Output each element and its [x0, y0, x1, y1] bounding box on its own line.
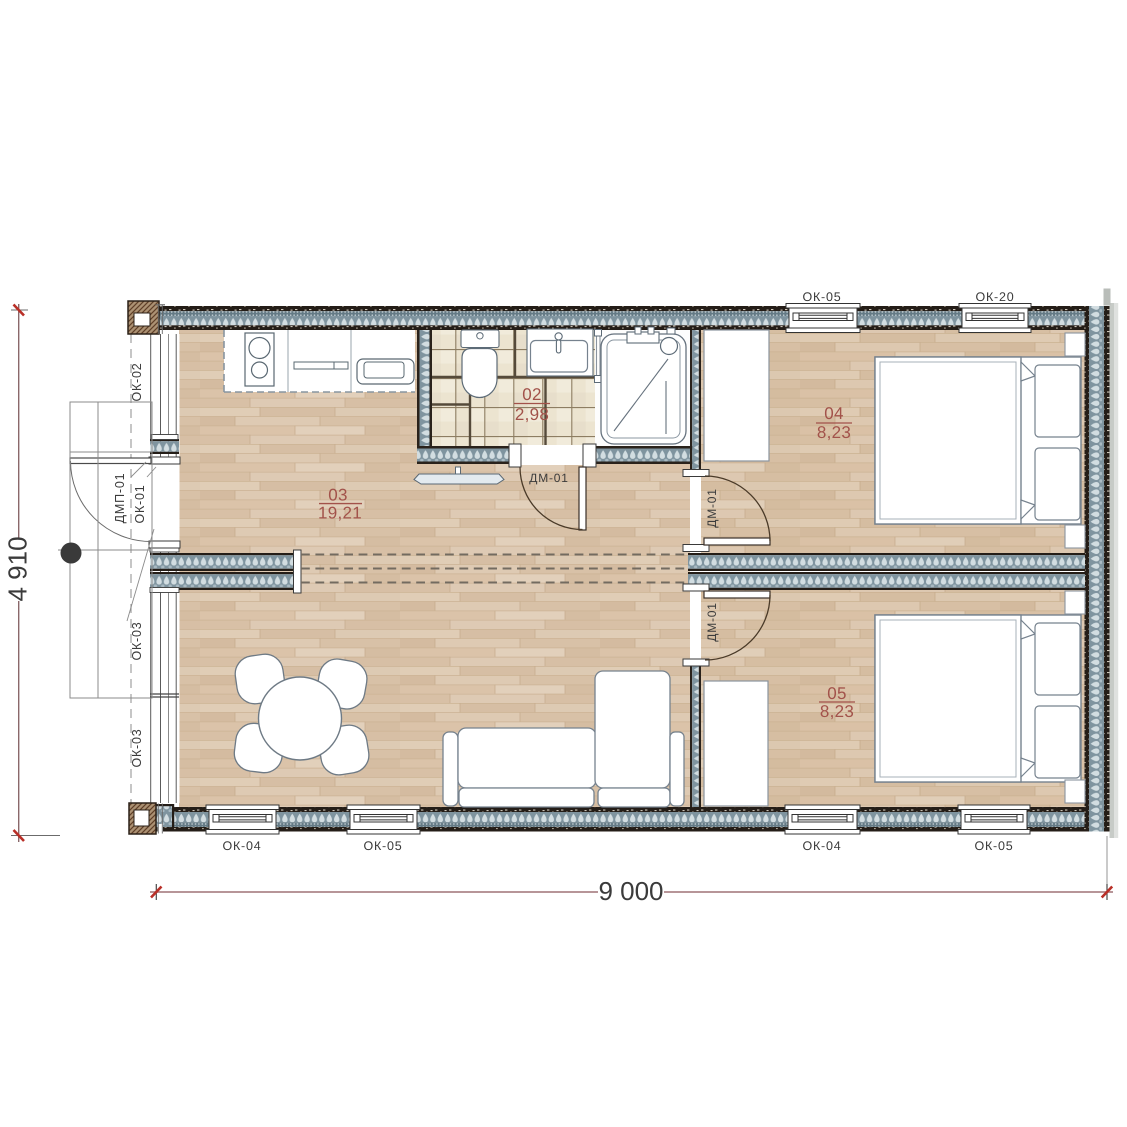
- svg-text:04: 04: [824, 404, 844, 423]
- svg-text:ОК-04: ОК-04: [802, 839, 841, 853]
- svg-text:03: 03: [328, 485, 348, 504]
- svg-text:ОК-02: ОК-02: [130, 362, 144, 401]
- svg-text:ОК-03: ОК-03: [130, 621, 144, 660]
- svg-text:2,98: 2,98: [515, 405, 549, 424]
- svg-text:ОК-05: ОК-05: [974, 839, 1013, 853]
- svg-text:ДМ-01: ДМ-01: [705, 602, 719, 641]
- svg-text:ДМ-01: ДМ-01: [529, 471, 568, 485]
- svg-text:8,23: 8,23: [820, 702, 854, 721]
- svg-text:ДМ-01: ДМ-01: [705, 488, 719, 527]
- svg-text:19,21: 19,21: [318, 503, 362, 522]
- svg-text:8,23: 8,23: [817, 423, 851, 442]
- svg-text:4 910: 4 910: [3, 536, 33, 601]
- svg-text:02: 02: [522, 385, 542, 404]
- svg-text:ОК-20: ОК-20: [975, 290, 1014, 304]
- svg-text:9 000: 9 000: [598, 876, 663, 906]
- svg-text:05: 05: [827, 684, 847, 703]
- svg-text:ДМП-01: ДМП-01: [113, 473, 127, 524]
- svg-text:ОК-04: ОК-04: [222, 839, 261, 853]
- svg-text:ОК-05: ОК-05: [802, 290, 841, 304]
- svg-text:ОК-05: ОК-05: [363, 839, 402, 853]
- svg-text:ОК-01: ОК-01: [133, 484, 147, 523]
- svg-text:ОК-03: ОК-03: [130, 728, 144, 767]
